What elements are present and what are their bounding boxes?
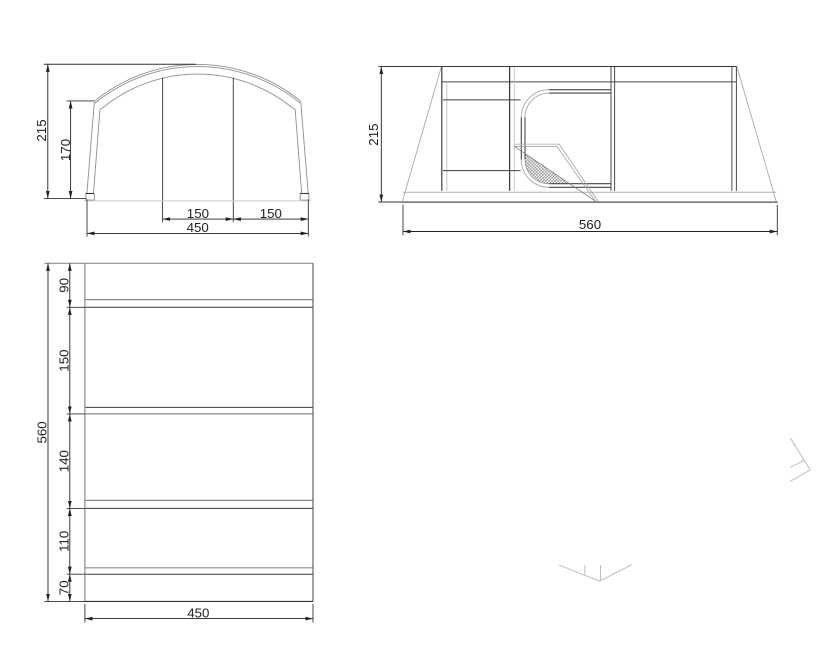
svg-text:90: 90 [56, 278, 71, 293]
svg-text:215: 215 [366, 124, 381, 146]
svg-text:170: 170 [58, 139, 73, 161]
svg-text:560: 560 [34, 421, 49, 443]
svg-text:150: 150 [56, 350, 71, 372]
svg-text:140: 140 [56, 450, 71, 472]
svg-text:450: 450 [187, 605, 209, 620]
svg-text:70: 70 [56, 580, 71, 595]
svg-text:110: 110 [56, 531, 71, 552]
svg-text:215: 215 [34, 119, 49, 141]
svg-text:150: 150 [260, 206, 282, 221]
svg-text:150: 150 [187, 206, 209, 221]
svg-text:450: 450 [187, 220, 209, 235]
svg-text:560: 560 [579, 217, 601, 232]
